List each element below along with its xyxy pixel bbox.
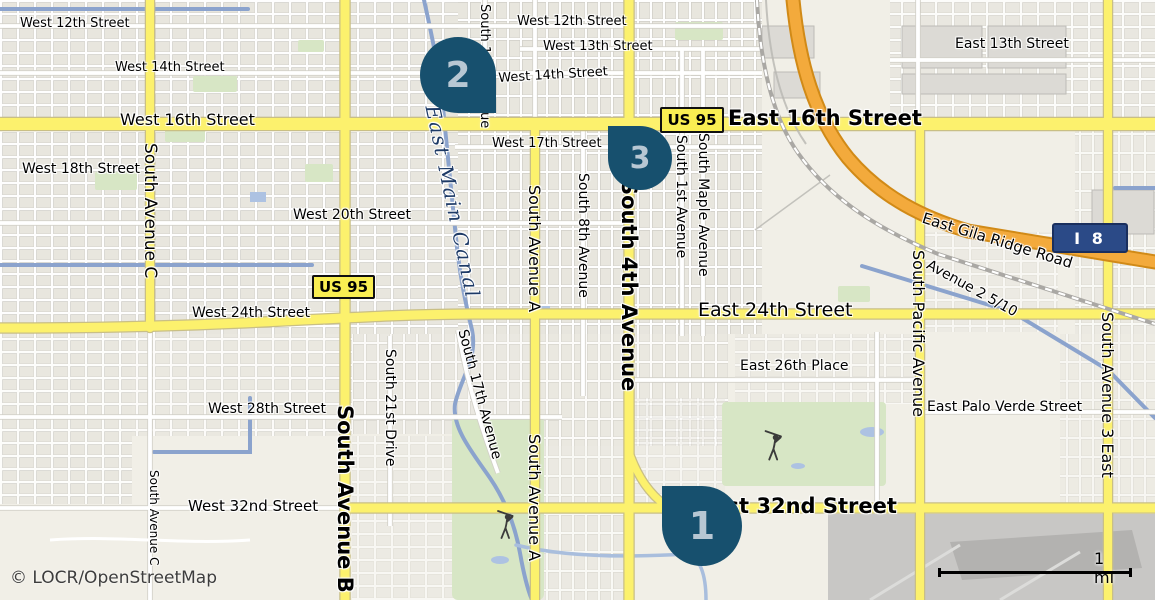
- map-attribution: © LOCR/OpenStreetMap: [10, 568, 217, 588]
- scale-line: [938, 568, 1132, 577]
- hud-layer: 1 mi © LOCR/OpenStreetMap: [0, 0, 1155, 600]
- map-canvas[interactable]: West 12th StreetWest 12th StreetWest 13t…: [0, 0, 1155, 600]
